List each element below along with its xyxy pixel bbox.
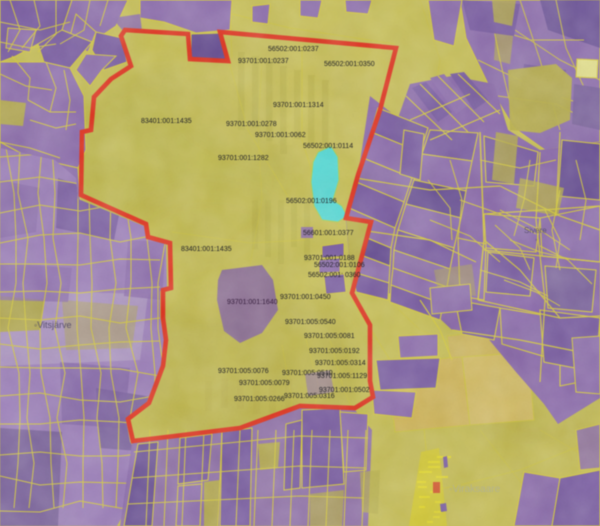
svg-text:93701:001:0237: 93701:001:0237 <box>238 58 289 65</box>
svg-text:93701:005:0081: 93701:005:0081 <box>304 333 355 340</box>
svg-text:93701:005:0316: 93701:005:0316 <box>284 393 335 400</box>
svg-text:83401:001:1435: 83401:001:1435 <box>141 118 192 125</box>
svg-text:56502:001:0350: 56502:001:0350 <box>324 61 375 68</box>
svg-text:56601:001:0377: 56601:001:0377 <box>303 230 354 237</box>
svg-text:93701:005:0266: 93701:005:0266 <box>234 396 285 403</box>
svg-text:93701:001:1282: 93701:001:1282 <box>218 155 269 162</box>
svg-text:93701:005:0540: 93701:005:0540 <box>285 319 336 326</box>
svg-text:93701:005:0076: 93701:005:0076 <box>218 368 269 375</box>
svg-text:93701:001:0188: 93701:001:0188 <box>304 255 355 262</box>
svg-text:93701:001:0450: 93701:001:0450 <box>280 294 331 301</box>
svg-text:83401:001:1435: 83401:001:1435 <box>181 246 232 253</box>
svg-text:56502:001:0114: 56502:001:0114 <box>303 143 353 150</box>
svg-text:93701:005:1129: 93701:005:1129 <box>317 373 367 380</box>
svg-text:93701:001:0062: 93701:001:0062 <box>255 132 306 139</box>
svg-text:56502:001:0106: 56502:001:0106 <box>314 262 365 269</box>
svg-text:56502:001:0196: 56502:001:0196 <box>286 198 337 205</box>
svg-text:Sivere: Sivere <box>524 226 547 235</box>
svg-text:93701:005:0079: 93701:005:0079 <box>239 380 290 387</box>
svg-text:93701:005:0192: 93701:005:0192 <box>309 348 360 355</box>
svg-text:93701:001:1640: 93701:001:1640 <box>227 299 278 306</box>
svg-text:93701:005:0314: 93701:005:0314 <box>315 360 366 367</box>
svg-text:◦Viraksaare: ◦Viraksaare <box>449 484 501 495</box>
svg-text:93701:001:1314: 93701:001:1314 <box>273 102 324 109</box>
svg-text:◦Vitsjärve: ◦Vitsjärve <box>34 320 72 330</box>
svg-text:◦: ◦ <box>535 237 537 244</box>
svg-text:56502:001: 0360: 56502:001: 0360 <box>308 272 361 279</box>
svg-text:56502:001:0237: 56502:001:0237 <box>268 46 319 53</box>
svg-text:93701:001:0278: 93701:001:0278 <box>226 121 277 128</box>
